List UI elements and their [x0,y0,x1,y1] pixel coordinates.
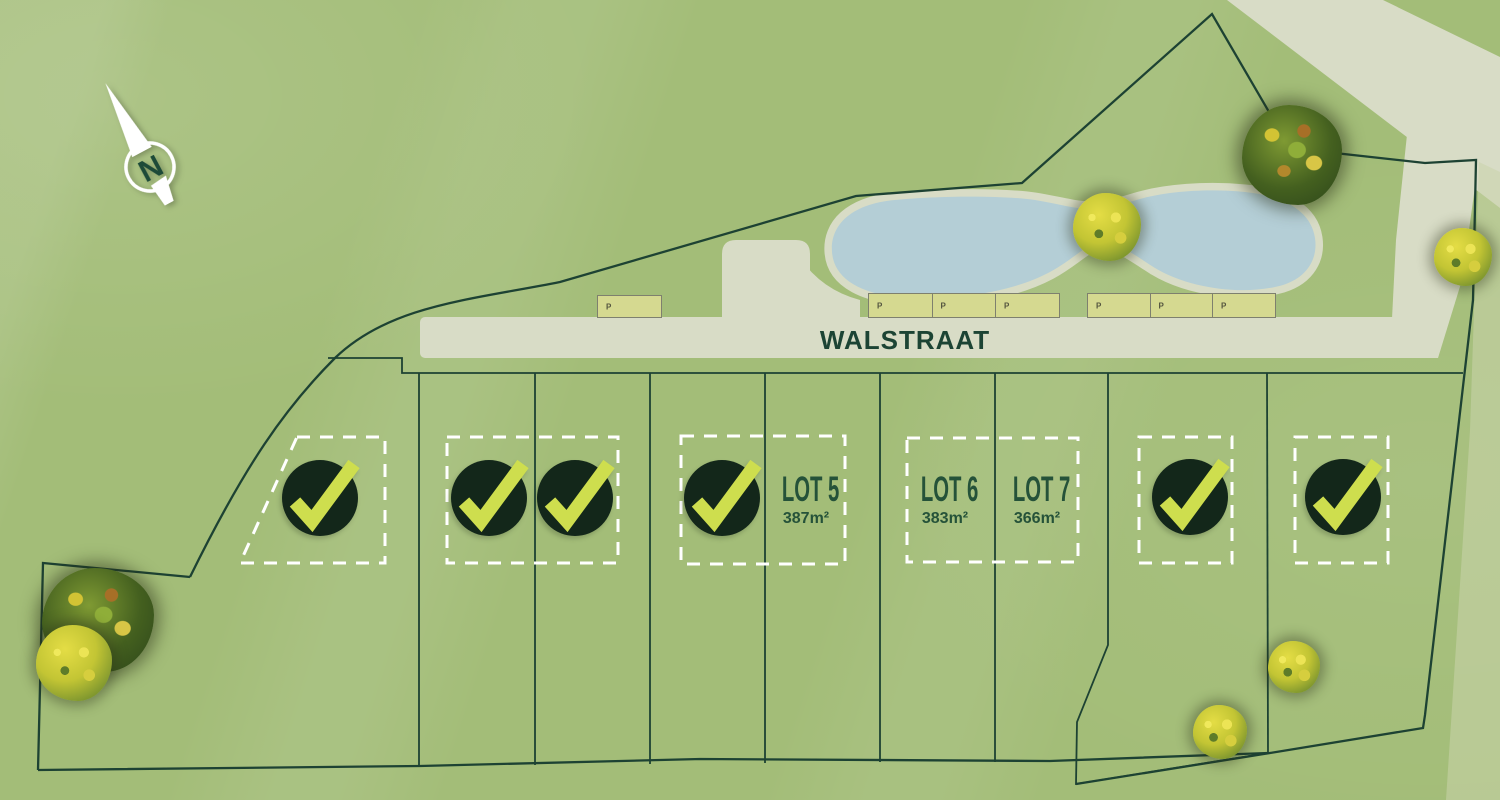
bush [36,625,112,701]
bush [1268,641,1320,693]
sold-check-icon [1288,442,1398,552]
tree [1242,105,1342,205]
lot-area: 383m² [900,510,990,528]
lot-6-label[interactable]: LOT 6 383m² [900,472,990,528]
parking-spot-label: P [941,301,946,310]
bush [1193,705,1247,759]
lot-7-label[interactable]: LOT 7 366m² [992,472,1082,528]
parking-spot: P [1150,293,1214,318]
bush [1073,193,1141,261]
lot-name: LOT 5 [782,472,840,507]
sold-check-icon [520,443,630,553]
parking-spot-label: P [877,301,882,310]
parking-spot: P [1212,293,1276,318]
lot-area: 366m² [992,510,1082,528]
parking-spot-label: P [1096,301,1101,310]
parking-spot: P [597,295,662,318]
lot-name: LOT 7 [1013,472,1071,507]
sold-check-icon [1135,442,1245,552]
parking-spot: P [868,293,933,318]
street-name-label: WALSTRAAT [740,325,1070,356]
lot-area: 387m² [761,510,851,528]
parking-spot: P [1087,293,1151,318]
lot-name: LOT 6 [921,472,979,507]
bush [1434,228,1492,286]
parking-spot-label: P [606,302,611,311]
sold-check-icon [265,443,375,553]
site-plan-map: P P P P P P P WALSTRAAT LOT 5 387m² LOT … [0,0,1500,800]
parking-spot: P [932,293,997,318]
parking-spot-label: P [1221,301,1226,310]
parking-spot: P [995,293,1060,318]
parking-spot-label: P [1004,301,1009,310]
lot-5-label[interactable]: LOT 5 387m² [761,472,851,528]
parking-spot-label: P [1159,301,1164,310]
